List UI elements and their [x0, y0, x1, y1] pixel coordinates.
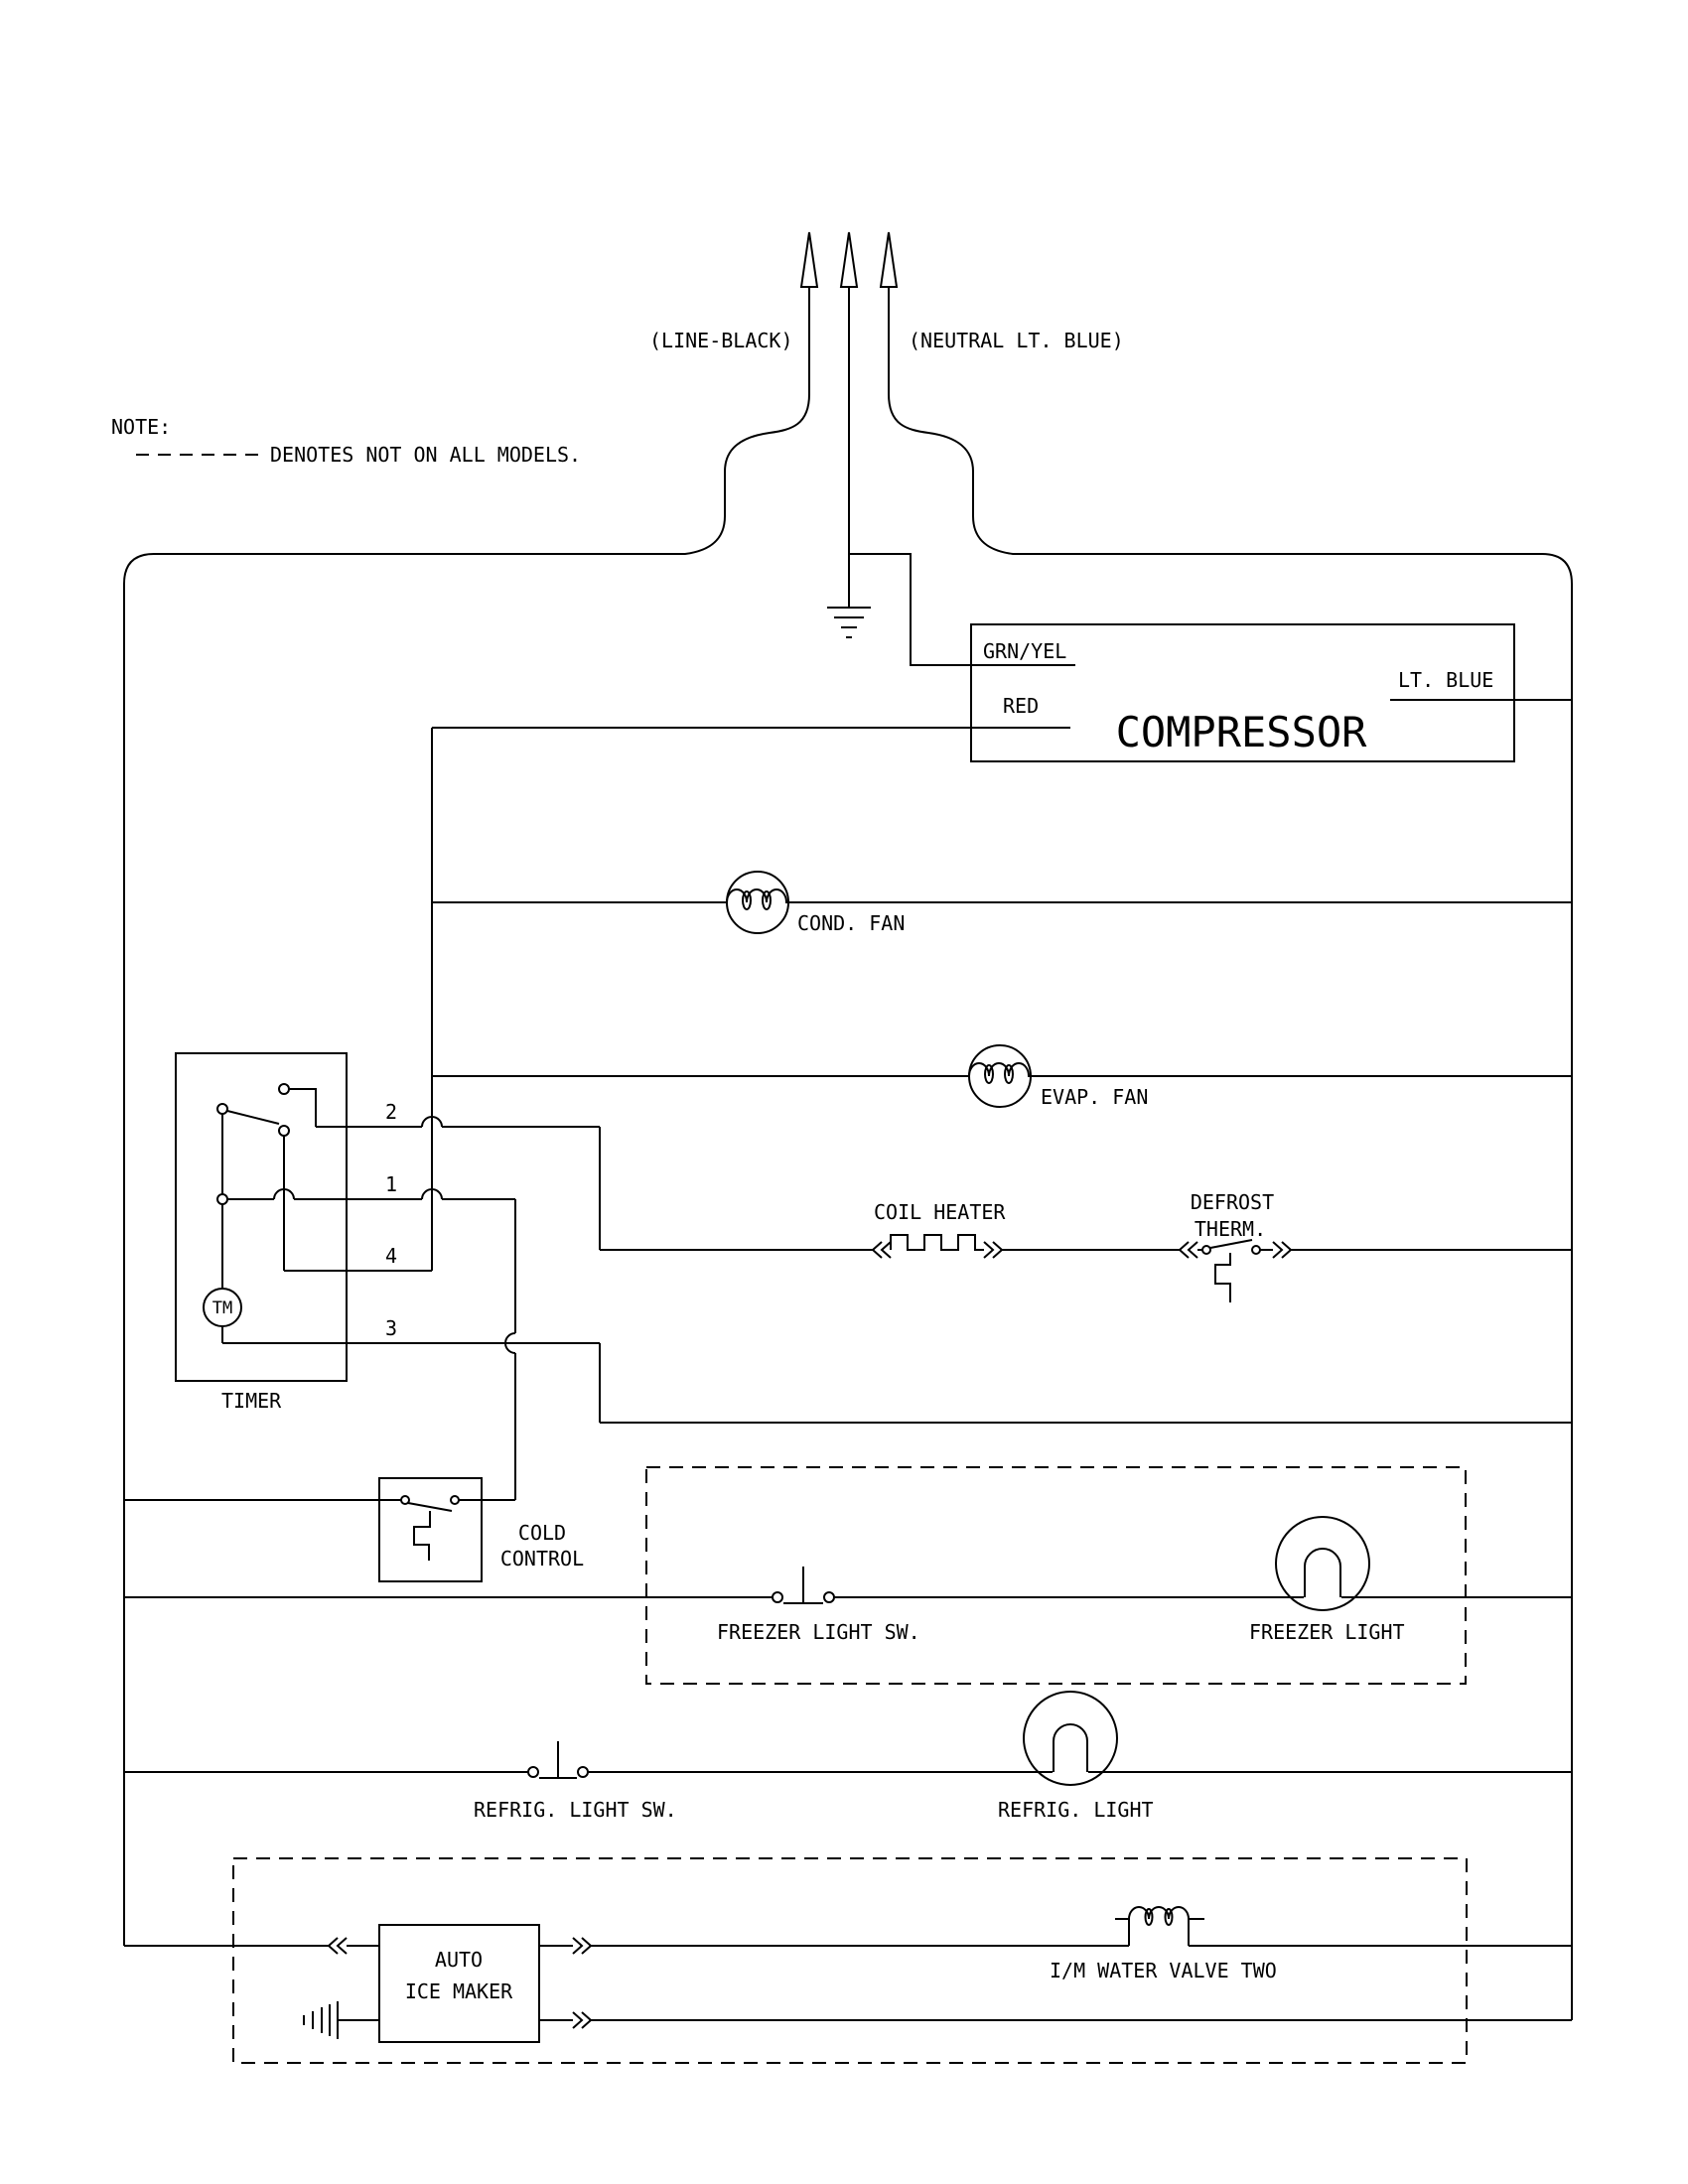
defrost-thermostat: DEFROST THERM. — [1180, 1190, 1572, 1302]
chassis-ground-icon — [304, 2001, 338, 2039]
cond-fan-label: COND. FAN — [797, 911, 905, 935]
compressor-label: COMPRESSOR — [1116, 708, 1368, 756]
neutral-arrow-icon — [881, 232, 897, 287]
refrig-light-label: REFRIG. LIGHT — [998, 1798, 1154, 1822]
grn-yel-label: GRN/YEL — [983, 639, 1066, 663]
refrig-switch-terminal — [528, 1767, 538, 1777]
supply-terminals: (LINE-BLACK) (NEUTRAL LT. BLUE) — [649, 232, 1124, 352]
cond-fan-motor-icon — [727, 872, 788, 933]
timer-terminal2-lead — [289, 1089, 316, 1127]
line-rail — [124, 287, 809, 1946]
ice-maker-optional-box — [233, 1858, 1467, 2063]
ice-maker-label-line2: ICE MAKER — [405, 1979, 513, 2003]
evap-fan: EVAP. FAN — [432, 1045, 1572, 1109]
cold-control-terminal — [451, 1496, 459, 1504]
contact-1-label: 1 — [385, 1172, 397, 1196]
note-block: NOTE: DENOTES NOT ON ALL MODELS. — [111, 415, 581, 467]
freezer-optional-box — [646, 1467, 1466, 1684]
contact-4-label: 4 — [385, 1244, 397, 1268]
refrig-switch-terminal — [578, 1767, 588, 1777]
connector-chevrons-left-icon — [873, 1242, 891, 1258]
connector-chevrons-right-icon — [573, 2012, 591, 2028]
defrost-terminal — [1252, 1246, 1260, 1254]
cold-control-terminal — [401, 1496, 409, 1504]
connector-chevrons-left-icon — [1180, 1242, 1197, 1258]
connector-chevrons-right-icon — [573, 1938, 591, 1954]
evap-fan-motor-icon — [969, 1045, 1031, 1107]
cond-fan-coil-icon — [727, 889, 788, 902]
defrost-label-line2: THERM. — [1195, 1217, 1266, 1241]
coil-heater: COIL HEATER — [600, 1200, 1180, 1258]
neutral-rail — [889, 287, 1572, 2020]
freezer-light-sw-label: FREEZER LIGHT SW. — [717, 1620, 920, 1644]
timer-switch-blade — [227, 1111, 279, 1124]
timer-motor-label: TM — [212, 1298, 232, 1318]
timer-terminal-1 — [217, 1194, 227, 1204]
connector-chevrons-left-icon — [329, 1938, 347, 1954]
line-terminal-label: (LINE-BLACK) — [649, 329, 793, 352]
cold-control-sensor-zigzag — [414, 1511, 430, 1561]
freezer-light-label: FREEZER LIGHT — [1249, 1620, 1405, 1644]
refrig-light-bulb-icon — [1024, 1692, 1117, 1785]
defrost-switch-blade — [1210, 1240, 1252, 1248]
water-valve-leads — [1115, 1919, 1204, 1946]
contact-2-label: 2 — [385, 1100, 397, 1124]
water-valve-label: I/M WATER VALVE TWO — [1050, 1959, 1277, 1982]
defrost-sensor-zigzag — [1215, 1253, 1230, 1302]
cond-fan: COND. FAN — [432, 872, 1572, 935]
timer-box — [176, 1053, 347, 1381]
evap-fan-coil-icon — [969, 1063, 1031, 1076]
defrost-timer: TM 2 1 4 3 TIMER — [176, 1053, 600, 1413]
neutral-terminal-label: (NEUTRAL LT. BLUE) — [909, 329, 1124, 352]
refrigerator-wiring-schematic: NOTE: DENOTES NOT ON ALL MODELS. (LINE-B… — [0, 0, 1688, 2184]
defrost-label-line1: DEFROST — [1191, 1190, 1274, 1214]
refrig-switch-plunger-icon — [539, 1741, 577, 1778]
freezer-bulb-filament — [1305, 1549, 1340, 1597]
timer-terminal-2 — [279, 1084, 289, 1094]
note-label: NOTE: — [111, 415, 171, 439]
freezer-light-bulb-icon — [1276, 1517, 1369, 1610]
compressor: GRN/YEL RED LT. BLUE COMPRESSOR — [432, 624, 1572, 761]
water-valve-coil-icon — [1129, 1907, 1189, 1919]
freezer-switch-terminal — [824, 1592, 834, 1602]
refrig-bulb-filament — [1054, 1724, 1087, 1772]
evap-fan-label: EVAP. FAN — [1041, 1085, 1148, 1109]
timer-terminal-4-contact — [279, 1126, 289, 1136]
lt-blue-label: LT. BLUE — [1398, 668, 1493, 692]
cold-control-box — [379, 1478, 482, 1581]
timer-label: TIMER — [221, 1389, 282, 1413]
cold-control-switch-blade — [408, 1503, 452, 1511]
ground-arrow-icon — [841, 232, 857, 287]
connector-chevrons-right-icon — [1273, 1242, 1291, 1258]
connector-chevrons-right-icon — [984, 1242, 1002, 1258]
freezer-switch-plunger-icon — [783, 1567, 823, 1603]
contact-3-label: 3 — [385, 1316, 397, 1340]
coil-heater-label: COIL HEATER — [874, 1200, 1006, 1224]
heater-element-icon — [891, 1235, 984, 1250]
freezer-switch-terminal — [773, 1592, 782, 1602]
note-text: DENOTES NOT ON ALL MODELS. — [270, 443, 581, 467]
cold-control-label-line1: COLD — [518, 1521, 566, 1545]
ice-maker-zone: AUTO ICE MAKER I/M WATER VALVE TWO — [124, 1858, 1572, 2063]
wiring-diagram-page: NOTE: DENOTES NOT ON ALL MODELS. (LINE-B… — [0, 0, 1688, 2184]
timer-pivot-terminal — [217, 1104, 227, 1114]
cold-control-label-line2: CONTROL — [500, 1547, 584, 1570]
refrig-light-sw-label: REFRIG. LIGHT SW. — [474, 1798, 677, 1822]
earth-ground-icon — [827, 608, 871, 637]
defrost-terminal — [1202, 1246, 1210, 1254]
red-label: RED — [1003, 694, 1039, 718]
interconnects — [432, 728, 1572, 1500]
ice-maker-label-line1: AUTO — [435, 1948, 483, 1972]
line-arrow-icon — [801, 232, 817, 287]
refrig-light-row: REFRIG. LIGHT SW. REFRIG. LIGHT — [124, 1692, 1572, 1822]
